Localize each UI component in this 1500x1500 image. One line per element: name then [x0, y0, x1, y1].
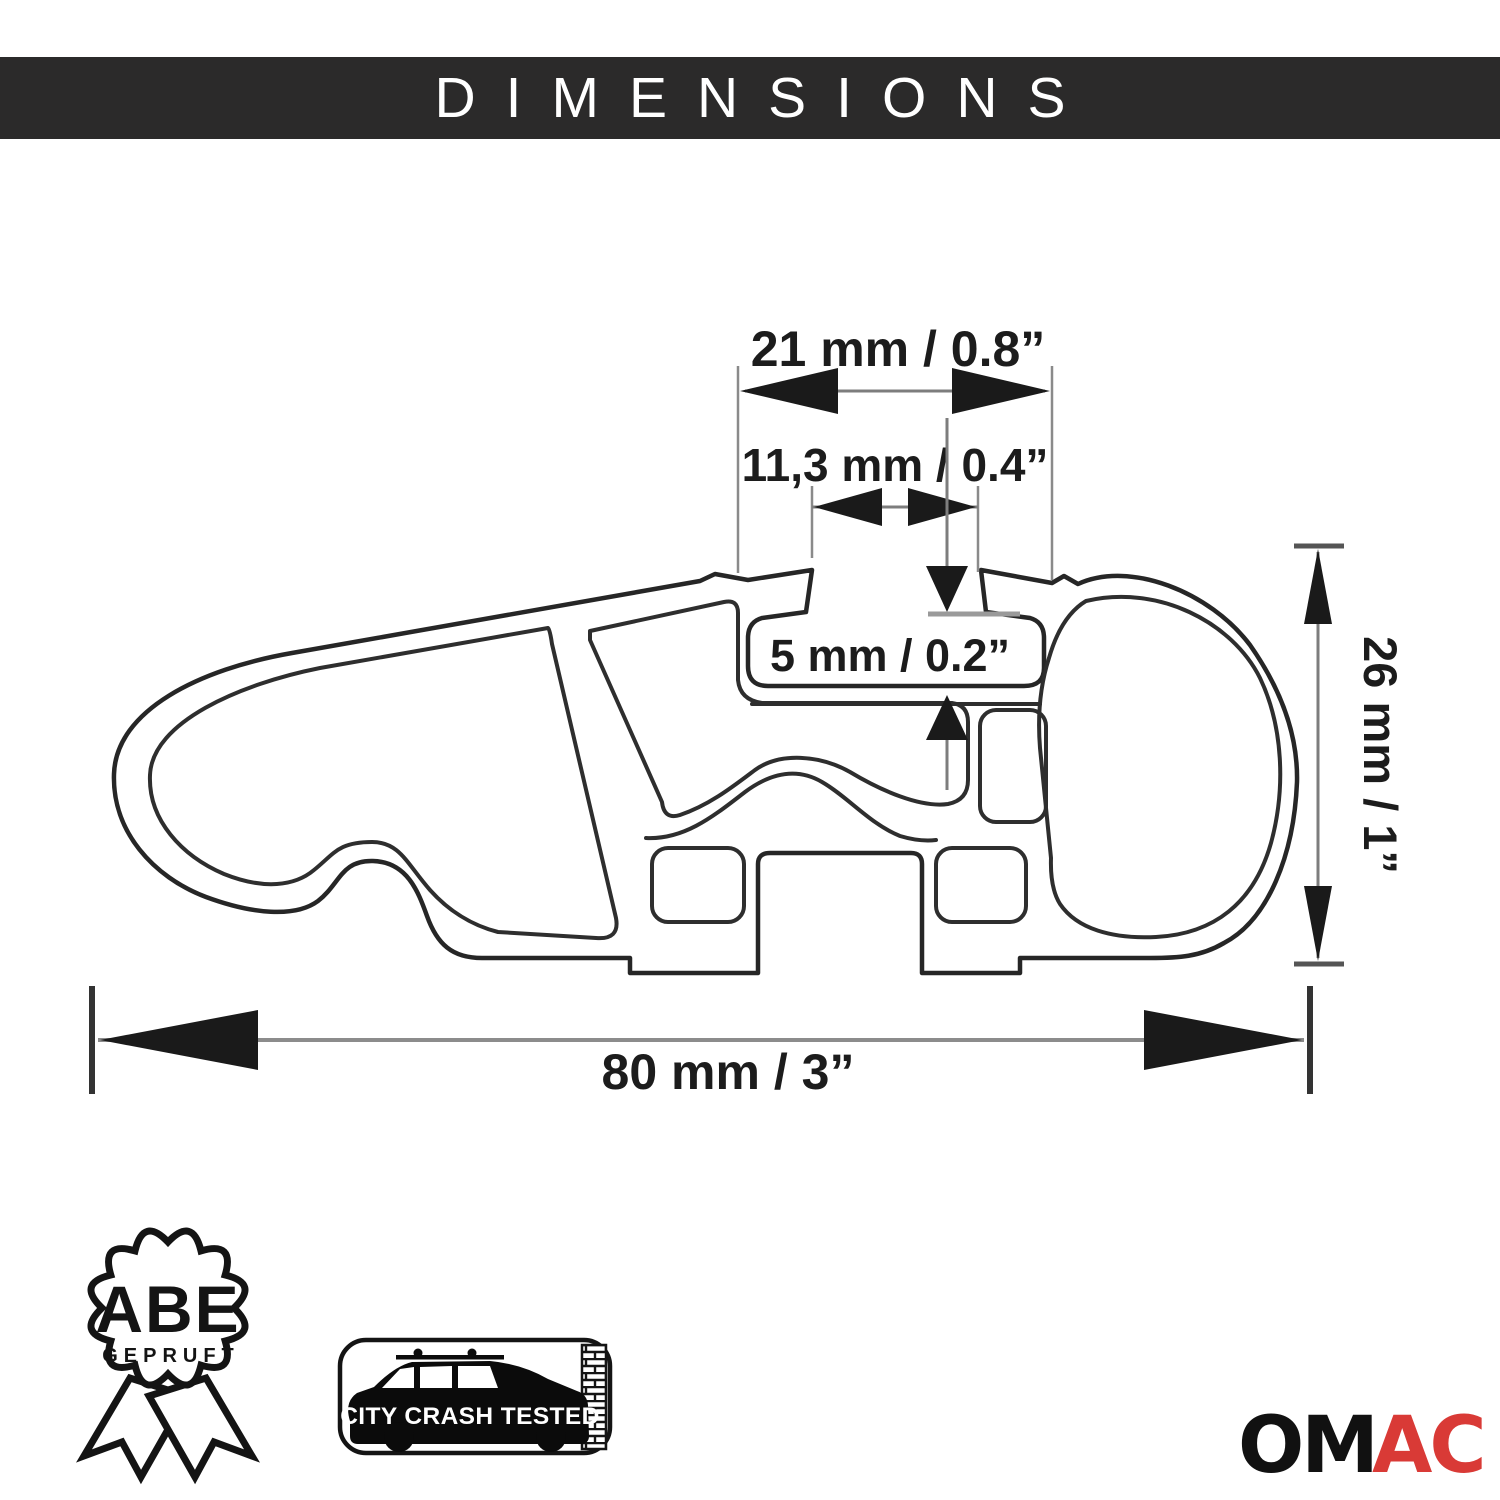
product-dimensions-image: DIMENSIONS: [0, 0, 1500, 1500]
ribbon-right: [149, 1378, 252, 1477]
web-lower-line: [646, 774, 936, 841]
dimension-height: 26 mm / 1”: [1294, 546, 1407, 964]
bottom-left-chamber: [652, 848, 744, 922]
dim-label-total-width: 80 mm / 3”: [602, 1044, 855, 1100]
car-window: [420, 1366, 452, 1388]
arrowhead-right-icon: [1144, 1010, 1302, 1070]
dim-label-top-width: 21 mm / 0.8”: [751, 321, 1046, 377]
arrowhead-up-icon: [1304, 549, 1332, 624]
arrowhead-left-icon: [814, 488, 882, 526]
crossbar-profile: [114, 570, 1297, 973]
omac-logo: OM AC: [1238, 1401, 1484, 1491]
abe-badge-subtitle: GEPRUFT: [102, 1345, 240, 1367]
arrowhead-left-icon: [100, 1010, 258, 1070]
crash-badge-label: CITY CRASH TESTED: [340, 1403, 600, 1430]
roof-rack-foot: [414, 1349, 423, 1358]
roof-rack-foot: [468, 1349, 477, 1358]
city-crash-tested-badge: CITY CRASH TESTED: [340, 1340, 610, 1453]
crossbar-profile-outline: [114, 570, 1297, 973]
dimension-total-width: 80 mm / 3”: [92, 986, 1310, 1100]
roof-rack-bar: [396, 1355, 504, 1360]
arrowhead-right-icon: [908, 488, 976, 526]
omac-logo-black: OM: [1238, 1401, 1376, 1491]
omac-logo-red: AC: [1372, 1401, 1484, 1491]
dimension-slot-width: 11,3 mm / 0.4”: [742, 439, 1049, 572]
dim-label-height: 26 mm / 1”: [1354, 636, 1407, 874]
nose-cavity-line: [150, 628, 617, 938]
mid-right-chamber: [980, 710, 1046, 822]
abe-badge-title: ABE: [95, 1272, 240, 1346]
dim-label-lip-depth: 5 mm / 0.2”: [770, 630, 1010, 681]
right-cavity-line: [1039, 597, 1280, 937]
dimensions-diagram: 21 mm / 0.8” 11,3 mm / 0.4” 5 mm / 0.2”: [0, 0, 1500, 1500]
abe-badge: ABE GEPRUFT: [84, 1231, 252, 1477]
arrowhead-down-icon: [1304, 886, 1332, 961]
arrowhead-down-icon: [926, 566, 968, 612]
bottom-right-chamber: [936, 848, 1026, 922]
dim-label-slot-width: 11,3 mm / 0.4”: [742, 439, 1049, 491]
